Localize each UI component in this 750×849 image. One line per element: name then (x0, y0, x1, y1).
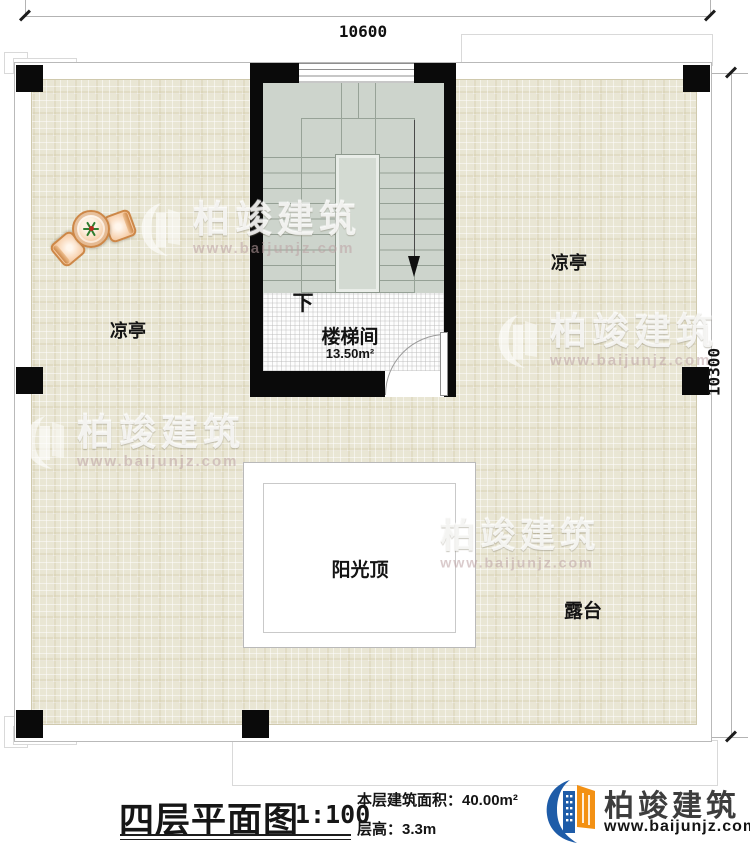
stairwell-wall-bottom (250, 371, 385, 397)
skylight-label: 阳光顶 (280, 555, 440, 582)
title-underline (120, 839, 351, 840)
floor-height-text: 层高：3.3m (357, 818, 436, 839)
title-underline (120, 834, 351, 836)
stairwell-wall-left (250, 63, 263, 397)
column (16, 65, 43, 92)
column (242, 710, 269, 738)
company-logo-icon (543, 777, 601, 845)
pavilion-right-label: 凉亭 (529, 249, 609, 275)
plant-flower-icon (89, 226, 94, 231)
stair-guide-line (341, 83, 342, 154)
stair-landing-rail (335, 154, 380, 293)
lower-floor-outline (232, 740, 718, 786)
chair-back (122, 212, 134, 234)
stair-guide-line (375, 83, 376, 154)
skylight-box: 阳光顶 (243, 462, 476, 648)
stair-flight-area (263, 83, 444, 293)
chair-back (53, 244, 71, 264)
dimension-label-right: 10300 (705, 348, 724, 396)
down-label: 下 (280, 287, 326, 317)
stairwell-window (299, 63, 414, 83)
column (683, 65, 710, 92)
column (16, 367, 43, 394)
stair-direction-line (414, 120, 415, 256)
patio-furniture (50, 204, 145, 274)
patio-table (72, 210, 110, 248)
stairwell-label: 楼梯间 (290, 322, 410, 349)
stairwell-wall-top-left (250, 63, 299, 83)
pavilion-left-label: 凉亭 (88, 317, 168, 343)
dimension-line-right (731, 73, 732, 737)
stairwell-area-label: 13.50m² (290, 346, 410, 361)
stair-guide-line (358, 83, 359, 118)
down-arrow-icon (408, 256, 420, 277)
door-leaf (440, 332, 448, 396)
floor-plan-canvas: 阳光顶 下 楼梯间 13.50m² (0, 0, 750, 849)
dimension-label-top: 10600 (323, 22, 403, 41)
company-url: www.baijunjz.com (604, 818, 750, 836)
terrace-label: 露台 (543, 596, 623, 623)
stairwell-wall-top-right (414, 63, 456, 83)
floor-area-text: 本层建筑面积：40.00m² (357, 789, 518, 810)
column (16, 710, 43, 738)
stairwell: 下 楼梯间 13.50m² (250, 63, 456, 397)
dimension-line-top (25, 16, 711, 17)
